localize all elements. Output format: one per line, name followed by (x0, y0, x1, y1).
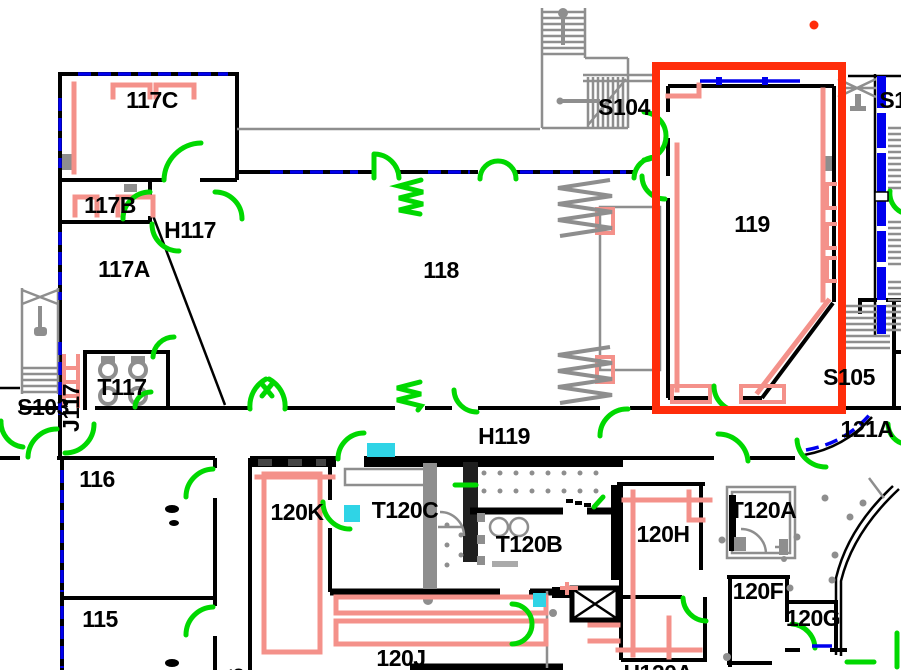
room-119-highlight-box (656, 66, 842, 410)
room-label-120f: 120F (733, 578, 784, 604)
furniture-pink (64, 84, 837, 657)
room-label-s104: S104 (598, 94, 650, 120)
room-label-120j: 120J (376, 645, 425, 670)
room-label-119: 119 (734, 211, 770, 237)
room-label-s1-partial: S1 (879, 87, 901, 113)
floor-plan-canvas: 117C 117B H117 117A 118 119 S104 S103 T1… (0, 0, 901, 670)
room-label-j117-rotated: J117 (58, 384, 84, 432)
room-label-121a: 121A (841, 416, 894, 442)
floor-plan-page: 117C 117B H117 117A 118 119 S104 S103 T1… (0, 0, 901, 670)
room-label-120k: 120K (271, 499, 325, 525)
red-marker-dot (810, 21, 819, 30)
room-label-117c: 117C (126, 87, 178, 113)
room-label-h117: H117 (164, 217, 216, 243)
room-label-115: 115 (82, 606, 118, 632)
room-label-117a: 117A (98, 256, 150, 282)
cyan-fixture (367, 443, 395, 457)
room-label-t117: T117 (97, 374, 146, 400)
cyan-fixture (344, 505, 360, 522)
room-label-h119: H119 (478, 423, 530, 449)
cyan-fixture (533, 593, 546, 607)
room-label-t120c: T120C (372, 497, 439, 523)
room-label-116: 116 (79, 466, 115, 492)
room-label-120h: 120H (637, 521, 690, 547)
room-label-h120a: H120A (623, 660, 692, 670)
room-label-s105: S105 (823, 364, 875, 390)
room-label-117b: 117B (84, 192, 136, 218)
room-label-120g: 120G (786, 605, 840, 631)
room-label-t120a: T120A (730, 497, 797, 523)
room-label-118: 118 (423, 257, 459, 283)
room-label-t120b: T120B (496, 531, 563, 557)
